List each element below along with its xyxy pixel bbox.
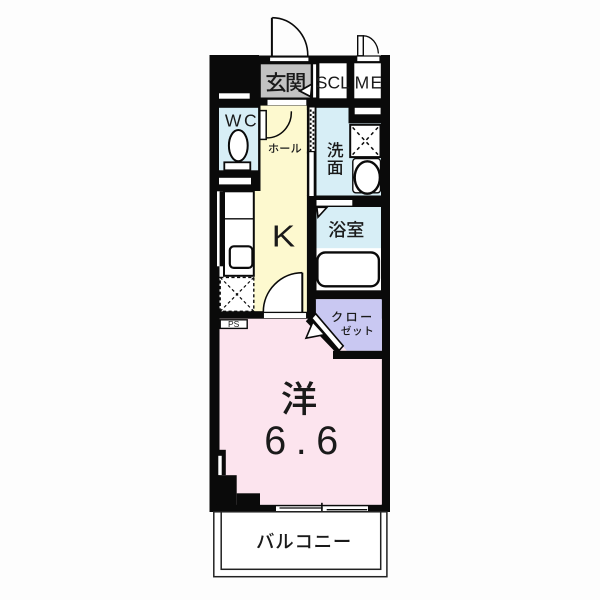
svg-text:WC: WC [225,111,259,131]
svg-text:6.6: 6.6 [264,419,347,463]
svg-text:SCL: SCL [316,73,350,93]
svg-text:PS: PS [228,319,240,329]
svg-text:K: K [272,219,295,254]
svg-text:ME: ME [355,73,384,93]
